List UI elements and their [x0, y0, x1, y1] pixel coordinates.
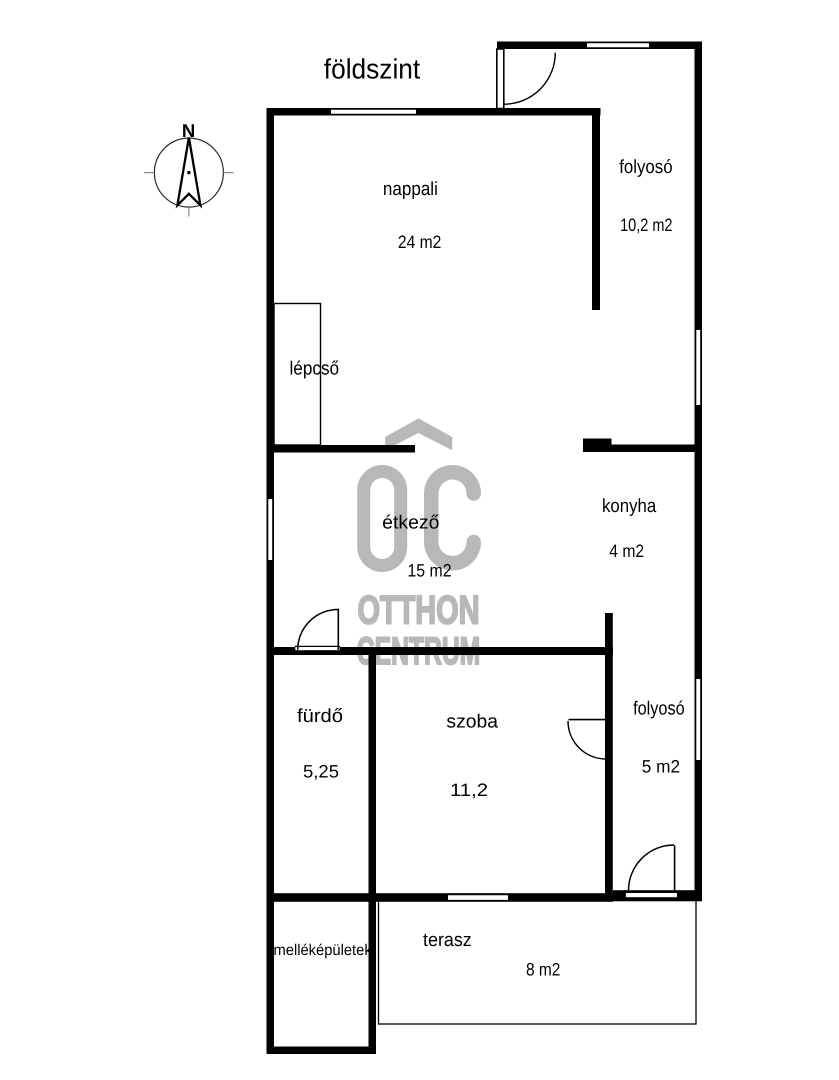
svg-text:N: N — [182, 120, 195, 141]
svg-text:konyha: konyha — [602, 496, 657, 517]
svg-text:11,2: 11,2 — [450, 780, 488, 800]
svg-text:OTTHON: OTTHON — [358, 588, 480, 632]
svg-text:szoba: szoba — [446, 712, 498, 733]
svg-text:8 m2: 8 m2 — [526, 960, 560, 980]
svg-text:folyosó: folyosó — [619, 157, 672, 178]
svg-text:10,2 m2: 10,2 m2 — [620, 215, 672, 235]
svg-text:nappali: nappali — [383, 179, 438, 200]
svg-text:melléképületek: melléképületek — [274, 942, 372, 959]
svg-text:lépcső: lépcső — [290, 358, 340, 379]
svg-text:5,25: 5,25 — [303, 762, 339, 782]
svg-text:24 m2: 24 m2 — [398, 232, 441, 252]
svg-text:étkező: étkező — [382, 512, 439, 533]
svg-text:5 m2: 5 m2 — [642, 757, 680, 777]
svg-text:15 m2: 15 m2 — [408, 561, 452, 581]
svg-text:földszint: földszint — [324, 53, 421, 84]
svg-text:4 m2: 4 m2 — [609, 541, 644, 561]
svg-text:fürdő: fürdő — [297, 706, 343, 727]
svg-text:folyosó: folyosó — [633, 699, 685, 720]
svg-text:terasz: terasz — [423, 930, 472, 951]
